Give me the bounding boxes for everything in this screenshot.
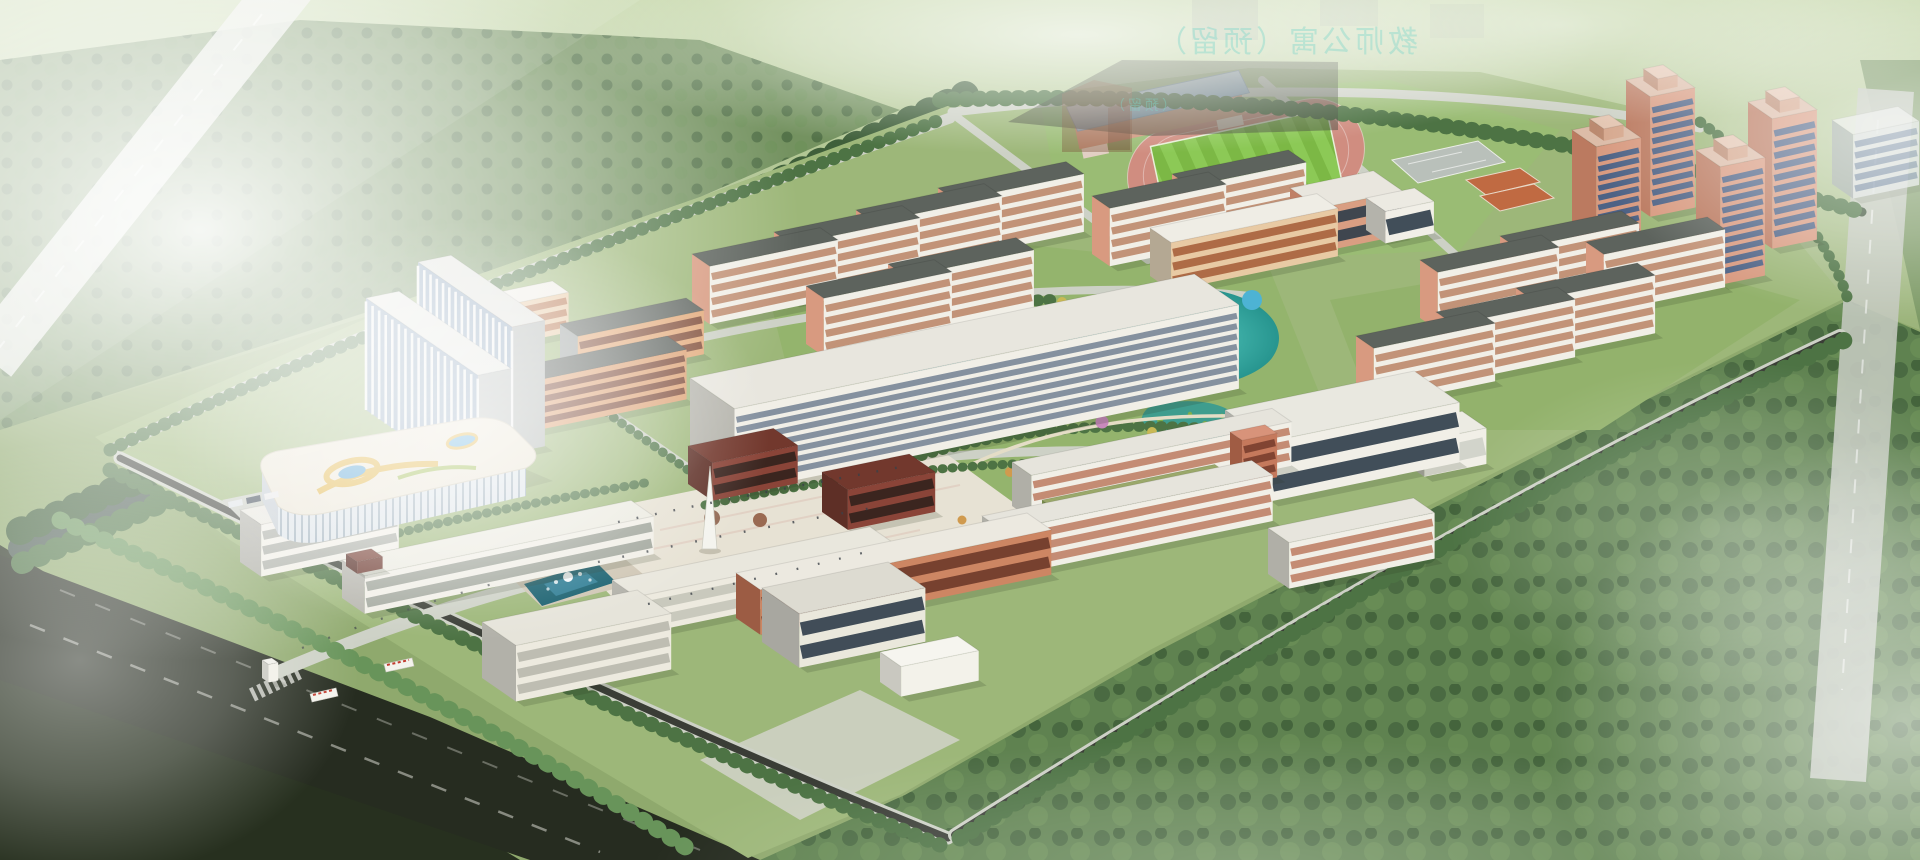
watermark-reserved-large: 教师公寓（预留） bbox=[1154, 25, 1418, 60]
campus-aerial-rendering: 教师公寓（预留） （预留） bbox=[0, 0, 1920, 860]
watermark-reserved-small: （预留） bbox=[1108, 98, 1176, 114]
rendering-canvas: 教师公寓（预留） （预留） bbox=[0, 0, 1920, 860]
blue-pool bbox=[1242, 290, 1262, 310]
